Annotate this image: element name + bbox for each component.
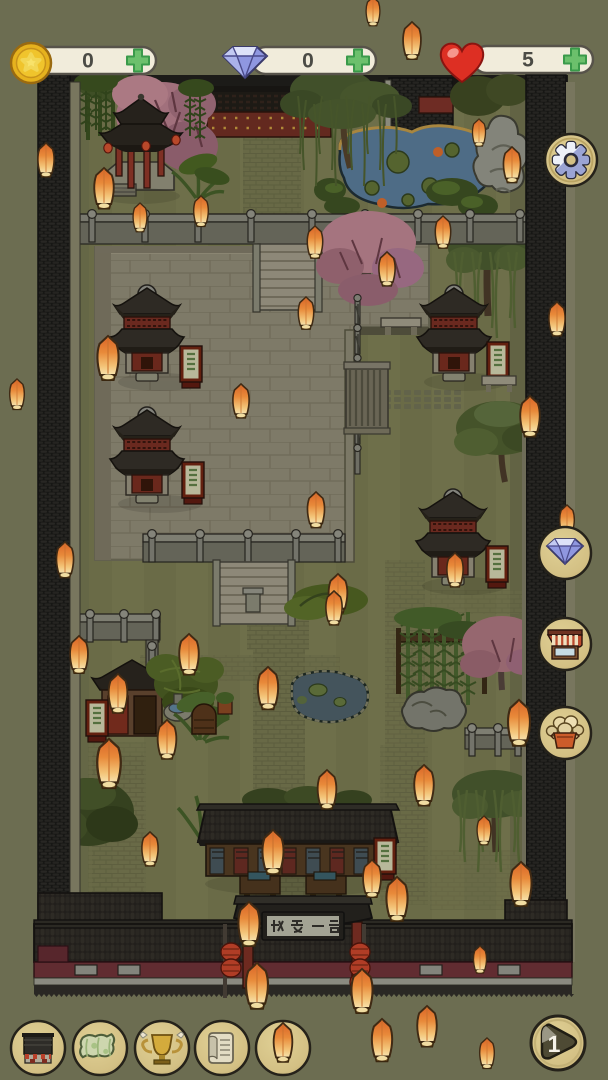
svg-text:0: 0 — [302, 50, 314, 73]
svg-text:5: 5 — [522, 49, 534, 72]
svg-text:0: 0 — [82, 50, 94, 73]
svg-text:1: 1 — [548, 1031, 561, 1057]
